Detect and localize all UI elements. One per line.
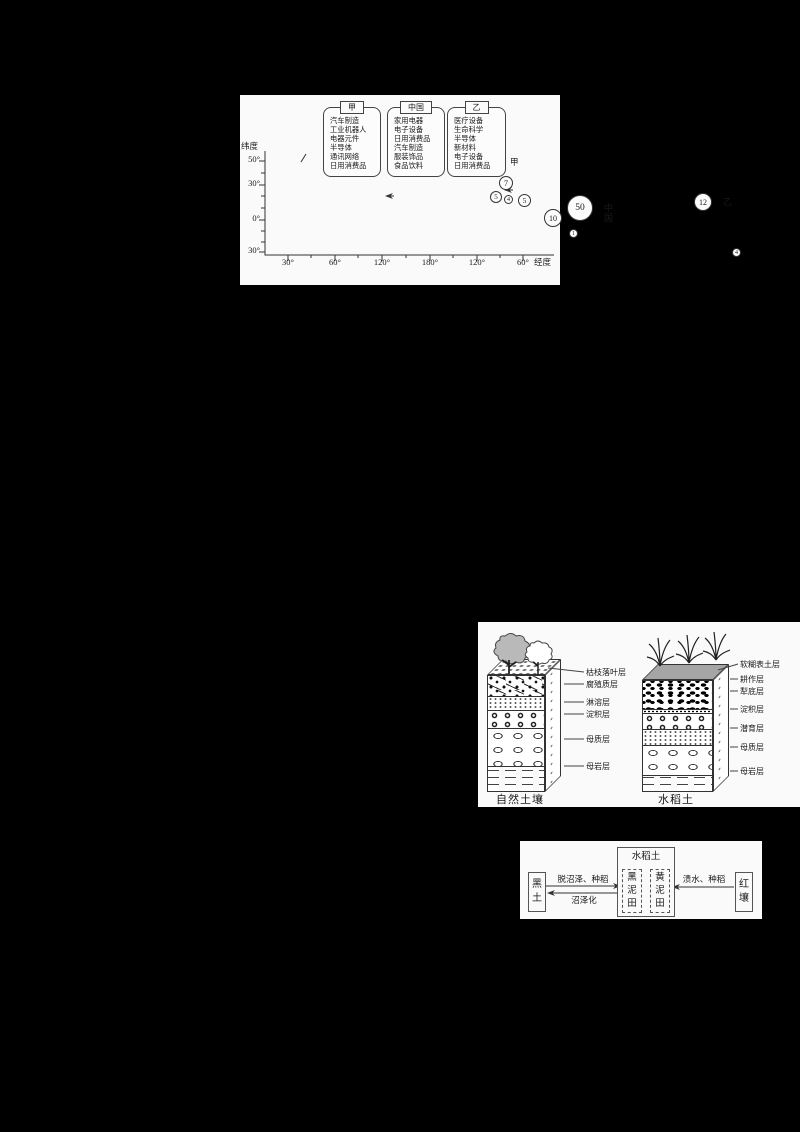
panel-formation-flow: 水稻土 黑泥田 黄泥田 黑土 红壤 脱沼泽、种稻 沼泽化 渍水、种稻 xyxy=(520,841,762,919)
x-tick-5: 120° xyxy=(466,258,488,268)
data-point-circle: 4 xyxy=(504,195,513,204)
paddy-soil-title: 水稻土 xyxy=(658,794,694,807)
paddy-soil-group-title: 水稻土 xyxy=(618,852,674,863)
y-axis-title: 纬度 xyxy=(241,142,258,152)
y-tick-30s: 30° xyxy=(242,246,260,256)
black-soil-label: 黑土 xyxy=(532,878,543,906)
layer-label: 母质层 xyxy=(586,735,610,744)
callout-jia: 甲 xyxy=(510,158,519,168)
layer-label: 母质层 xyxy=(740,743,764,752)
y-tick-50: 50° xyxy=(242,155,260,165)
data-point-circle: 5 xyxy=(518,194,531,207)
layer-label: 潜育层 xyxy=(740,724,764,733)
yellow-mud-field-label: 黄泥田 xyxy=(655,872,666,911)
legend-tab-jia: 甲 xyxy=(340,101,364,114)
red-soil-box: 红壤 xyxy=(735,872,753,912)
black-mud-field-box: 黑泥田 xyxy=(622,869,642,913)
x-tick-4: 180° xyxy=(419,258,441,268)
y-tick-0: 0° xyxy=(242,214,260,224)
x-tick-3: 120° xyxy=(371,258,393,268)
scanned-exam-page: { "page_bg": "#000000", "panel_bg": "#fa… xyxy=(0,0,800,1132)
layer-label: 犁底层 xyxy=(740,687,764,696)
legend-item: 日用消费品 xyxy=(454,162,503,171)
layer-label: 耕作层 xyxy=(740,675,764,684)
legend-tab-china: 中国 xyxy=(400,101,432,114)
legend-item: 食品饮料 xyxy=(394,162,442,171)
black-mud-field-label: 黑泥田 xyxy=(627,872,638,911)
legend-box-jia: 甲 汽车制造 工业机器人 电器元件 半导体 通讯网络 日用消费品 xyxy=(323,107,381,177)
legend-box-yi: 乙 医疗设备 生命科学 半导体 新材料 电子设备 日用消费品 7 5 4 5 1… xyxy=(447,107,506,177)
black-soil-box: 黑土 xyxy=(528,872,546,912)
arrow-label-deswamp: 脱沼泽、种稻 xyxy=(550,875,616,885)
x-axis-title: 经度 xyxy=(534,258,551,268)
data-point-circle: 1 xyxy=(569,229,578,238)
layer-label: 软糊表土层 xyxy=(740,660,780,669)
layer-label: 母岩层 xyxy=(586,762,610,771)
x-tick-2: 60° xyxy=(324,258,346,268)
y-tick-30: 30° xyxy=(242,179,260,189)
legend-box-china: 中国 家用电器 电子设备 日用消费品 汽车制造 服装饰品 食品饮料 xyxy=(387,107,445,177)
x-tick-6: 60° xyxy=(512,258,534,268)
layer-label: 枯枝落叶层 xyxy=(586,668,626,677)
legend-tab-yi: 乙 xyxy=(465,101,489,114)
data-point-circle: 5 xyxy=(490,191,502,203)
callout-yi: 乙 xyxy=(723,197,732,207)
arrow-label-waterlogging: 渍水、种稻 xyxy=(676,875,732,885)
natural-soil-title: 自然土壤 xyxy=(496,794,544,807)
layer-label: 淀积层 xyxy=(740,705,764,714)
callout-china: 中国 xyxy=(604,203,613,224)
arrow-label-swampification: 沼泽化 xyxy=(562,896,606,906)
data-point-circle: 50 xyxy=(567,195,593,221)
panel-soil-profiles: 枯枝落叶层 腐殖质层 淋溶层 淀积层 母质层 母岩层 软糊表土层 耕作层 犁底层… xyxy=(478,622,800,807)
red-soil-label: 红壤 xyxy=(739,878,750,906)
layer-label: 腐殖质层 xyxy=(586,680,618,689)
data-point-circle: 7 xyxy=(499,176,513,190)
yellow-mud-field-box: 黄泥田 xyxy=(650,869,670,913)
layer-label: 母岩层 xyxy=(740,767,764,776)
data-point-circle: 10 xyxy=(544,209,562,227)
data-point-circle: 12 xyxy=(694,193,712,211)
layer-label: 淋溶层 xyxy=(586,698,610,707)
data-point-circle: 4 xyxy=(732,248,741,257)
layer-label: 淀积层 xyxy=(586,710,610,719)
panel-scatter-chart: 纬度 50° 30° 0° 30° 30° 60° 120° 180° 120°… xyxy=(240,95,560,285)
x-tick-1: 30° xyxy=(277,258,299,268)
legend-item: 日用消费品 xyxy=(330,162,378,171)
layer-leader-lines xyxy=(478,622,800,807)
